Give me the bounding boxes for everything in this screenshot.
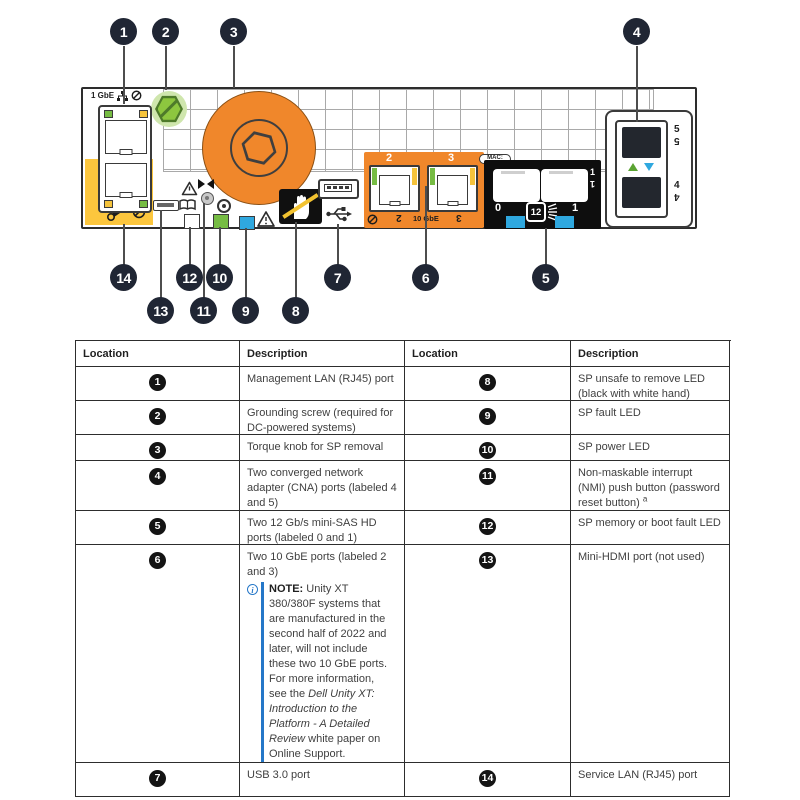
- sas-blue-tab-1: [555, 216, 574, 228]
- sas-side-label-1-flipped: 1: [590, 179, 595, 189]
- leader-line-10: [219, 227, 221, 265]
- leader-line-8: [295, 222, 297, 298]
- callout-8: 8: [282, 297, 309, 324]
- description-cell: Torque knob for SP removal: [240, 435, 405, 461]
- location-cell: 5: [76, 511, 240, 545]
- mini-sas-block: 1 1 0 12 1: [484, 160, 601, 229]
- sas-speed-badge: 12: [526, 202, 546, 222]
- service-lan-port: [103, 161, 149, 209]
- nmi-bowtie-icon: [197, 178, 215, 190]
- leader-line-5: [545, 228, 547, 265]
- location-badge: 13: [479, 552, 496, 569]
- description-cell: Service LAN (RJ45) port: [571, 763, 730, 797]
- warning-triangle-icon: [256, 210, 276, 228]
- mini-hdmi-port: [153, 200, 179, 211]
- leader-line-4: [636, 46, 638, 122]
- no-phone-icon: [131, 90, 142, 101]
- location-badge: 7: [149, 770, 166, 787]
- leader-line-7: [337, 224, 339, 265]
- description-cell: SP fault LED: [571, 401, 730, 435]
- location-badge: 2: [149, 408, 166, 425]
- location-badge: 9: [479, 408, 496, 425]
- unsafe-remove-led: [279, 189, 322, 224]
- book-icon: [178, 198, 197, 212]
- sp-fault-led: [239, 216, 255, 230]
- callout-13: 13: [147, 297, 174, 324]
- location-badge: 4: [149, 468, 166, 485]
- lan-port-block: [98, 105, 152, 213]
- warning-triangle-icon: [181, 181, 198, 196]
- ten-gbe-port-2: [369, 165, 420, 212]
- callout-5: 5: [532, 264, 559, 291]
- leader-line-3: [233, 46, 235, 88]
- callout-12: 12: [176, 264, 203, 291]
- location-badge: 10: [479, 442, 496, 459]
- leader-line-14: [123, 224, 125, 265]
- location-cell: 8: [405, 367, 571, 401]
- location-cell: 3: [76, 435, 240, 461]
- note-text: NOTE: Unity XT 380/380F systems that are…: [265, 582, 388, 762]
- description-cell: Management LAN (RJ45) port: [240, 367, 405, 401]
- management-lan-port: [103, 109, 149, 157]
- usb-icon: [326, 203, 352, 226]
- ten-gbe-block: 2 3: [364, 152, 484, 228]
- callout-11: 11: [190, 297, 217, 324]
- leader-line-6: [425, 186, 427, 265]
- grounding-screw: [151, 91, 187, 127]
- no-phone-icon: [367, 214, 378, 225]
- callout-9: 9: [232, 297, 259, 324]
- port-3-label-flipped: 3: [456, 212, 462, 223]
- description-cell: Two 10 GbE ports (labeled 2 and 3) i NOT…: [240, 545, 405, 763]
- location-badge: 11: [479, 468, 496, 485]
- leader-line-9: [245, 228, 247, 298]
- callout-6: 6: [412, 264, 439, 291]
- callout-10: 10: [206, 264, 233, 291]
- location-badge: 12: [479, 518, 496, 535]
- cna-inner-frame: [615, 120, 668, 218]
- leader-line-2: [165, 46, 167, 90]
- col-header: Location: [405, 341, 571, 367]
- port-2-label-flipped: 2: [396, 212, 402, 223]
- cna-port-block: 5 5 4 4: [605, 110, 693, 228]
- gbe-label: 1 GbE: [91, 91, 114, 100]
- description-cell: Two 12 Gb/s mini-SAS HD ports (labeled 0…: [240, 511, 405, 545]
- rear-panel-diagram: 1 GbE: [0, 0, 800, 340]
- location-cell: 14: [405, 763, 571, 797]
- location-cell: 4: [76, 461, 240, 511]
- sfp-cage-0: [493, 169, 540, 202]
- location-badge: 14: [479, 770, 496, 787]
- location-badge: 5: [149, 518, 166, 535]
- description-cell: SP memory or boot fault LED: [571, 511, 730, 545]
- ten-gbe-port-3: [427, 165, 478, 212]
- location-badge: 6: [149, 552, 166, 569]
- gbe-label-row: 1 GbE: [91, 90, 142, 101]
- storage-processor-panel: 1 GbE: [81, 87, 697, 229]
- location-badge: 1: [149, 374, 166, 391]
- torque-knob: [202, 91, 316, 205]
- leader-line-13: [160, 210, 162, 298]
- location-cell: 13: [405, 545, 571, 763]
- port-2-label: 2: [386, 152, 392, 164]
- leader-line-11: [203, 203, 205, 298]
- cna-port-4: [622, 177, 661, 208]
- cna-label-4: 4 4: [674, 181, 680, 201]
- sas-side-label-1: 1: [590, 167, 595, 177]
- cna-port-5: [622, 127, 661, 158]
- col-header: Location: [76, 341, 240, 367]
- sfp-cage-1: [541, 169, 588, 202]
- description-cell: Two converged network adapter (CNA) port…: [240, 461, 405, 511]
- location-cell: 9: [405, 401, 571, 435]
- callout-2: 2: [152, 18, 179, 45]
- description-cell: Non-maskable interrupt (NMI) push button…: [571, 461, 730, 511]
- location-cell: 2: [76, 401, 240, 435]
- callout-7: 7: [324, 264, 351, 291]
- location-cell: 12: [405, 511, 571, 545]
- callout-3: 3: [220, 18, 247, 45]
- link-up-triangle-icon: [628, 163, 638, 171]
- note-block: i NOTE: Unity XT 380/380F systems that a…: [247, 582, 397, 762]
- sas-port-1-label: 1: [572, 202, 578, 214]
- sas-port-0-label: 0: [495, 202, 501, 214]
- col-header: Description: [240, 341, 405, 367]
- callout-14: 14: [110, 264, 137, 291]
- callout-1: 1: [110, 18, 137, 45]
- callout-4: 4: [623, 18, 650, 45]
- note-accent-bar: [261, 582, 264, 762]
- description-cell: USB 3.0 port: [240, 763, 405, 797]
- location-cell: 6: [76, 545, 240, 763]
- power-icon: [217, 199, 231, 213]
- cna-label-5: 5 5: [674, 125, 680, 145]
- location-cell: 10: [405, 435, 571, 461]
- sp-memory-fault-led: [184, 214, 200, 229]
- link-down-triangle-icon: [644, 163, 654, 171]
- location-badge: 3: [149, 442, 166, 459]
- location-description-table: Location Description Location Descriptio…: [75, 340, 731, 797]
- col-header: Description: [571, 341, 730, 367]
- sas-blue-tab-0: [506, 216, 525, 228]
- leader-line-1: [123, 46, 125, 104]
- description-cell: Grounding screw (required for DC-powered…: [240, 401, 405, 435]
- info-icon: i: [247, 584, 258, 595]
- usb-port: [318, 179, 359, 199]
- footnote-marker: a: [643, 494, 647, 503]
- location-cell: 1: [76, 367, 240, 401]
- location-cell: 11: [405, 461, 571, 511]
- description-cell: SP unsafe to remove LED (black with whit…: [571, 367, 730, 401]
- description-cell: SP power LED: [571, 435, 730, 461]
- sp-power-led: [213, 214, 229, 229]
- location-badge: 8: [479, 374, 496, 391]
- description-cell: Mini-HDMI port (not used): [571, 545, 730, 763]
- manual-page: 1 GbE: [0, 0, 800, 800]
- location-cell: 7: [76, 763, 240, 797]
- port-3-label: 3: [448, 152, 454, 164]
- leader-line-12: [189, 227, 191, 265]
